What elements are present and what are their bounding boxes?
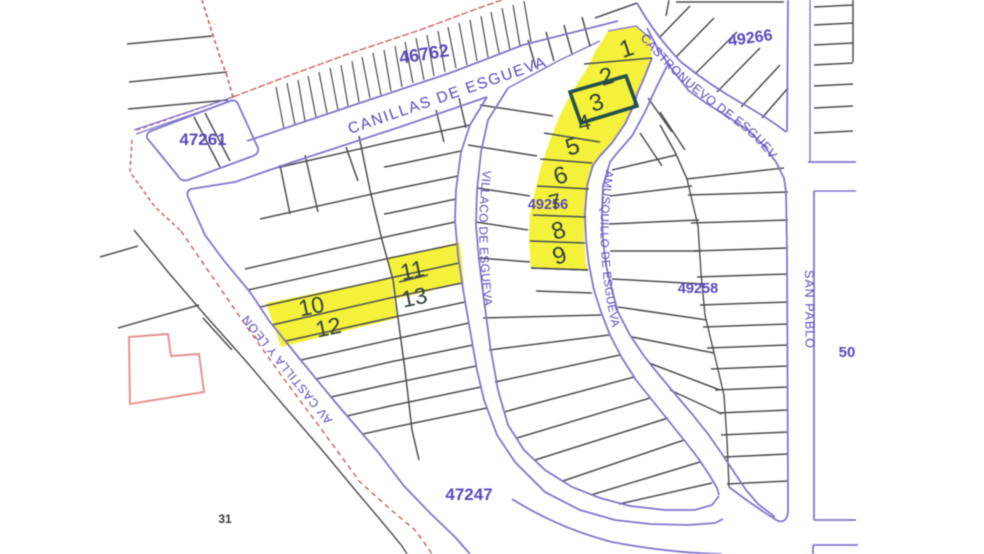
svg-text:12: 12 bbox=[313, 312, 343, 343]
svg-text:50: 50 bbox=[839, 344, 856, 361]
svg-text:SAN PABLO: SAN PABLO bbox=[802, 270, 817, 349]
svg-text:13: 13 bbox=[399, 282, 429, 313]
svg-text:31: 31 bbox=[218, 512, 232, 526]
svg-text:47247: 47247 bbox=[445, 485, 492, 504]
svg-text:47261: 47261 bbox=[179, 130, 226, 149]
svg-text:49258: 49258 bbox=[678, 281, 718, 297]
